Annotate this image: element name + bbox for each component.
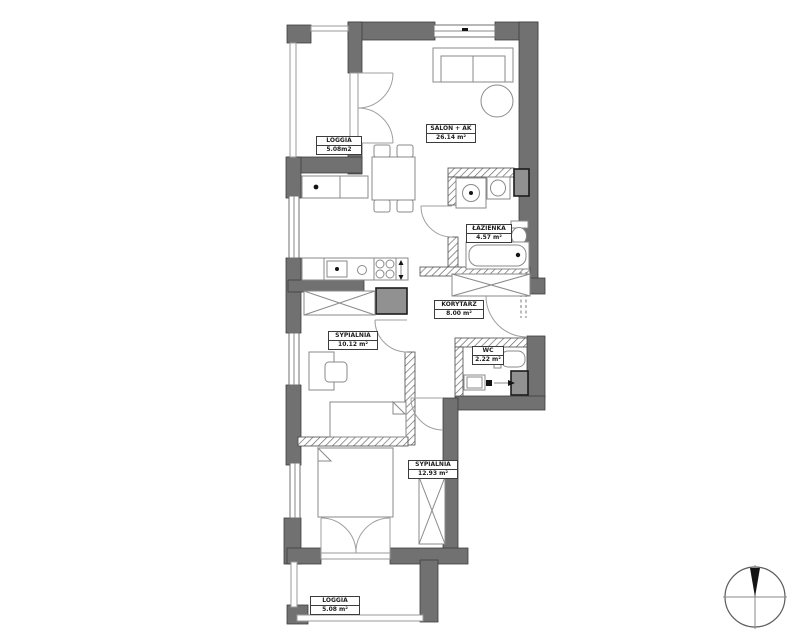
room-label-sypialnia-2: SYPIALNIA 12.93 m² bbox=[408, 460, 458, 479]
wc-right-wall bbox=[527, 336, 545, 398]
wc-left-wall bbox=[455, 347, 463, 396]
furniture-corridor bbox=[452, 274, 530, 296]
wall-below-wc bbox=[455, 396, 545, 410]
bed-double bbox=[318, 448, 393, 517]
corridor-wardrobe bbox=[452, 274, 530, 296]
room-label-wc: WC 2.22 m² bbox=[472, 346, 504, 365]
wall-left-2 bbox=[286, 258, 301, 333]
bedroom2-wardrobe bbox=[419, 477, 445, 544]
room-area: 10.12 m² bbox=[329, 341, 377, 349]
room-label-lazienka: ŁAZIENKA 4.57 m² bbox=[466, 224, 512, 243]
room-area: 5.08 m² bbox=[311, 606, 359, 614]
loggia-bottom-rail-left bbox=[291, 562, 297, 607]
room-area: 8.00 m² bbox=[435, 310, 483, 318]
window-kitchen-left bbox=[289, 196, 299, 258]
washing-machine bbox=[456, 178, 486, 208]
door-bathroom bbox=[421, 206, 452, 237]
loggia-top-rail-left bbox=[290, 43, 296, 157]
room-name: LOGGIA bbox=[317, 137, 361, 146]
room-label-loggia-top: LOGGIA 5.08m2 bbox=[316, 136, 362, 155]
room-name: ŁAZIENKA bbox=[467, 225, 511, 234]
room-name: LOGGIA bbox=[311, 597, 359, 606]
bathroom-sink bbox=[487, 177, 510, 199]
window-bedroom1-left bbox=[289, 333, 299, 385]
wc-sink bbox=[464, 375, 485, 390]
bedroom1-duct bbox=[376, 288, 407, 314]
bathroom-toilet bbox=[511, 221, 528, 245]
loggia-top-pillar bbox=[287, 25, 311, 43]
kitchen-counter-top bbox=[302, 176, 368, 198]
room-area: 12.93 m² bbox=[409, 470, 457, 478]
room-name: SYPIALNIA bbox=[329, 332, 377, 341]
bathtub bbox=[466, 242, 529, 269]
bathroom-shaft bbox=[514, 169, 529, 196]
sofa bbox=[433, 48, 513, 82]
french-door-loggia-top bbox=[350, 73, 393, 143]
room-name: WC bbox=[473, 347, 503, 356]
room-area: 4.57 m² bbox=[467, 234, 511, 242]
french-door-loggia-bottom bbox=[321, 518, 390, 559]
door-bedroom1 bbox=[375, 320, 407, 352]
bathroom-left-wall-lower bbox=[448, 237, 458, 268]
floor-plan-drawing bbox=[0, 0, 800, 642]
room-name: SYPIALNIA bbox=[409, 461, 457, 470]
desk-and-chair bbox=[309, 352, 347, 390]
compass-north-icon bbox=[723, 565, 787, 629]
room-label-loggia-bottom: LOGGIA 5.08 m² bbox=[310, 596, 360, 615]
dining-table-set bbox=[372, 145, 415, 212]
bedroom1-top-wall bbox=[288, 280, 364, 292]
room-name: KORYTARZ bbox=[435, 301, 483, 310]
room-area: 26.14 m² bbox=[427, 134, 475, 142]
window-salon-top bbox=[434, 25, 495, 37]
room-name: SALON + AK bbox=[427, 125, 475, 134]
wall-left-1 bbox=[286, 157, 301, 198]
kitchen-sink bbox=[358, 266, 367, 275]
floor-plan: LOGGIA 5.08m2 SALON + AK 26.14 m² ŁAZIEN… bbox=[0, 0, 800, 642]
kitchen-counter-bottom bbox=[302, 258, 408, 280]
room-area: 2.22 m² bbox=[473, 356, 503, 364]
bed-single bbox=[330, 402, 406, 437]
loggia-top-wall-upper bbox=[348, 22, 362, 73]
loggia-top-rail-top bbox=[311, 26, 348, 31]
round-table bbox=[481, 85, 513, 117]
bedroom-divider-wall bbox=[298, 437, 408, 446]
bedroom1-wardrobe bbox=[304, 291, 375, 315]
wall-left-3 bbox=[286, 385, 301, 465]
room-label-salon: SALON + AK 26.14 m² bbox=[426, 124, 476, 143]
room-label-korytarz: KORYTARZ 8.00 m² bbox=[434, 300, 484, 319]
room-area: 5.08m2 bbox=[317, 146, 361, 154]
door-bedroom2 bbox=[411, 398, 443, 430]
bathroom-top-wall bbox=[448, 168, 514, 177]
room-label-sypialnia-1: SYPIALNIA 10.12 m² bbox=[328, 331, 378, 350]
loggia-bottom-right-wall bbox=[420, 560, 438, 622]
loggia-bottom-rail-bottom bbox=[297, 615, 423, 621]
window-bedroom2-left bbox=[290, 463, 300, 518]
